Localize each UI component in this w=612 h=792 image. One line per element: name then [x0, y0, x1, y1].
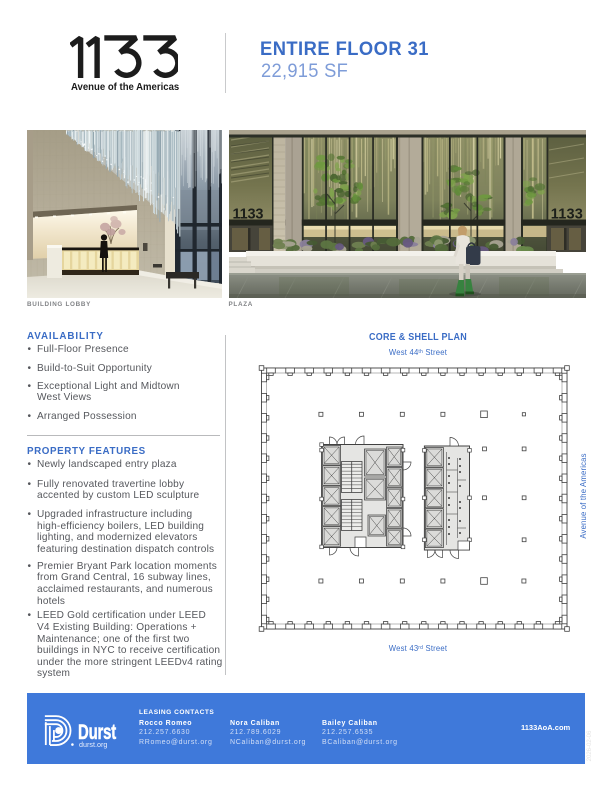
svg-text:1133: 1133	[232, 207, 263, 223]
svg-text:1133: 1133	[550, 207, 582, 223]
